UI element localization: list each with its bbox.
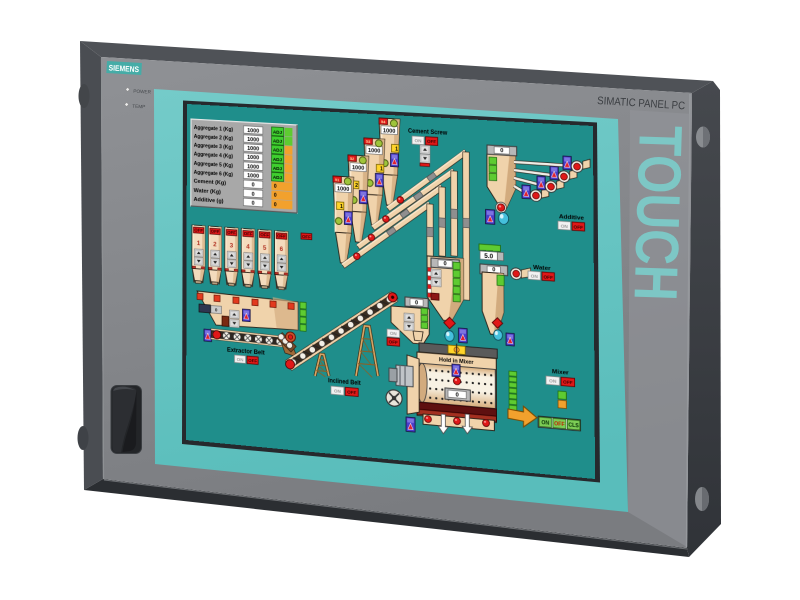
svg-text:1000: 1000 — [247, 164, 259, 171]
svg-text:ON: ON — [334, 388, 341, 394]
svg-text:1000: 1000 — [383, 128, 395, 135]
svg-text:SIEMENS: SIEMENS — [108, 63, 140, 74]
svg-text:0: 0 — [444, 261, 447, 268]
svg-text:OFF: OFF — [563, 379, 573, 385]
svg-text:0: 0 — [274, 202, 277, 208]
svg-text:ADJ: ADJ — [273, 147, 283, 153]
svg-text:1000: 1000 — [247, 146, 259, 153]
svg-text:ADJ: ADJ — [273, 156, 283, 162]
svg-text:4: 4 — [246, 243, 250, 251]
svg-text:OFF: OFF — [543, 274, 553, 280]
svg-text:ON: ON — [237, 356, 244, 362]
svg-text:OFF: OFF — [427, 139, 437, 145]
svg-text:6: 6 — [280, 246, 284, 254]
svg-text:OFF: OFF — [248, 357, 257, 363]
svg-text:OFF: OFF — [227, 230, 236, 236]
svg-text:0: 0 — [455, 392, 458, 399]
svg-text:ON: ON — [390, 331, 397, 337]
svg-text:OFF: OFF — [347, 389, 356, 395]
svg-text:OFF: OFF — [277, 233, 286, 239]
svg-text:OFF: OFF — [260, 232, 269, 238]
svg-text:ON: ON — [531, 273, 538, 279]
svg-text:0: 0 — [274, 184, 277, 190]
svg-text:OFF: OFF — [302, 234, 311, 240]
svg-text:ADJ: ADJ — [273, 138, 283, 144]
svg-text:1: 1 — [395, 146, 398, 153]
svg-text:0: 0 — [252, 182, 255, 188]
svg-text:OFF: OFF — [389, 339, 399, 345]
svg-text:ON: ON — [541, 420, 549, 427]
svg-text:1000: 1000 — [337, 186, 349, 193]
svg-text:ADJ: ADJ — [273, 175, 283, 181]
svg-text:TEMP: TEMP — [132, 104, 145, 110]
svg-text:OFF: OFF — [554, 421, 565, 428]
svg-text:1000: 1000 — [247, 155, 259, 162]
svg-text:ON: ON — [561, 223, 568, 229]
svg-text:5.0: 5.0 — [484, 254, 494, 261]
svg-text:1: 1 — [380, 166, 383, 173]
svg-text:OFF: OFF — [194, 228, 203, 234]
svg-text:2: 2 — [355, 183, 358, 190]
svg-text:52: 52 — [350, 157, 354, 161]
svg-text:0: 0 — [252, 191, 255, 197]
svg-text:OFF: OFF — [211, 229, 220, 235]
svg-text:OFF: OFF — [574, 224, 584, 230]
svg-text:POWER: POWER — [133, 89, 152, 95]
svg-text:0: 0 — [415, 300, 418, 307]
svg-text:OFF: OFF — [244, 231, 253, 237]
svg-text:0: 0 — [274, 193, 277, 199]
svg-text:0: 0 — [252, 200, 255, 206]
svg-text:Mixer: Mixer — [552, 369, 570, 377]
svg-text:ON: ON — [415, 138, 422, 144]
svg-text:1: 1 — [340, 204, 343, 211]
svg-text:1000: 1000 — [247, 173, 259, 180]
svg-text:CLS: CLS — [568, 422, 578, 429]
svg-text:51: 51 — [335, 178, 339, 182]
svg-text:TOUCH: TOUCH — [622, 125, 695, 302]
svg-text:1000: 1000 — [352, 165, 364, 172]
svg-text:1000: 1000 — [368, 148, 380, 155]
svg-text:1000: 1000 — [247, 128, 259, 135]
svg-text:ADJ: ADJ — [273, 166, 283, 172]
svg-text:ADJ: ADJ — [273, 129, 283, 135]
svg-text:ON: ON — [549, 378, 556, 384]
svg-text:1000: 1000 — [247, 137, 259, 144]
svg-text:53: 53 — [366, 140, 370, 144]
svg-text:0: 0 — [500, 148, 503, 155]
